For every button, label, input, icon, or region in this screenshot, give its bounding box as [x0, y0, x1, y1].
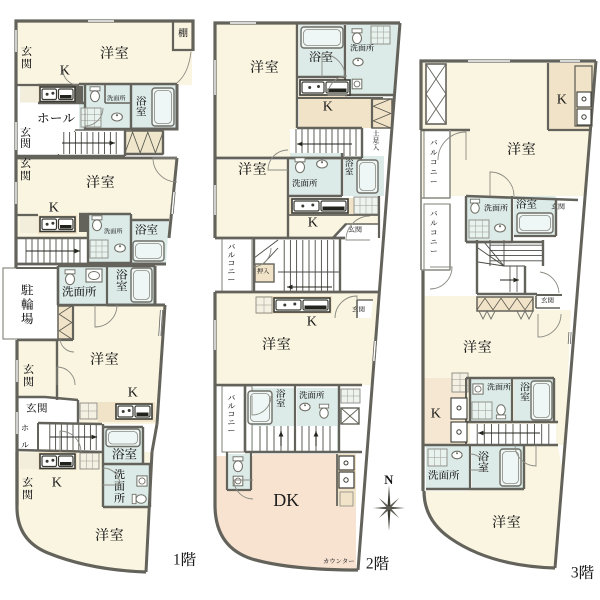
svg-text:3: 3: [571, 565, 579, 582]
svg-text:1: 1: [173, 552, 181, 569]
svg-text:K: K: [307, 315, 317, 330]
svg-text:K: K: [431, 407, 441, 422]
svg-text:K: K: [60, 64, 70, 79]
svg-text:K: K: [557, 93, 567, 108]
svg-text:D: D: [273, 490, 286, 510]
svg-text:K: K: [128, 386, 138, 401]
svg-text:K: K: [49, 201, 59, 216]
svg-text:K: K: [286, 490, 299, 510]
svg-text:2: 2: [366, 556, 374, 573]
svg-text:N: N: [384, 473, 393, 487]
svg-text:K: K: [308, 216, 318, 231]
svg-text:K: K: [52, 476, 62, 491]
svg-text:K: K: [323, 100, 333, 115]
